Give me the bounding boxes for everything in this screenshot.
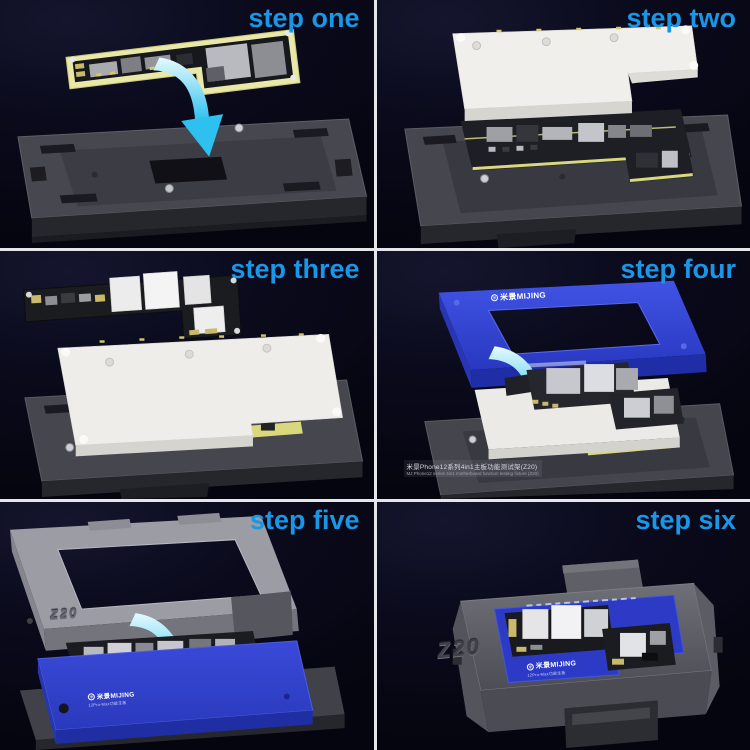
steps-grid: step one <box>0 0 750 750</box>
caption-line-2: MJ Phone12 series 4in1 motherboard funct… <box>407 471 539 476</box>
fixture-base <box>18 119 367 243</box>
mijing-logo: 米 米景MIJING 12Pro-Max功能主板 <box>526 658 577 678</box>
step-five-label: step five <box>250 505 360 536</box>
mijing-logo: 米 米景MIJING 12Pro-Max功能主板 <box>87 688 135 708</box>
step-one-label: step one <box>248 3 359 34</box>
step-three-label: step three <box>230 254 359 285</box>
step-three-illustration <box>0 251 374 499</box>
case-marking-z20: Z20 <box>435 634 481 664</box>
mijing-logo-icon: 米 <box>526 663 533 670</box>
step-six-illustration <box>377 502 750 750</box>
panel-step-six: step six <box>377 502 750 750</box>
step-two-illustration <box>377 0 750 248</box>
white-cover-plate <box>452 25 698 121</box>
panel-step-three: step three <box>0 251 374 499</box>
caption-line-1: 米景Phone12系列4in1主板功能测试架(Z20) <box>407 461 539 471</box>
product-caption: 米景Phone12系列4in1主板功能测试架(Z20) MJ Phone12 s… <box>404 460 542 477</box>
step-six-label: step six <box>635 505 736 536</box>
frame-marking-z20: Z20 <box>50 605 79 622</box>
step-four-label: step four <box>620 254 736 285</box>
step-one-illustration <box>0 0 374 248</box>
mijing-logo-icon: 米 <box>88 693 95 700</box>
upper-board-pcb <box>23 267 241 349</box>
assembled-fixture <box>452 560 722 748</box>
step-five-illustration <box>0 502 374 750</box>
fixture-with-cover <box>25 333 363 499</box>
step-two-label: step two <box>626 3 736 34</box>
panel-step-two: step two <box>377 0 750 248</box>
panel-step-one: step one <box>0 0 374 248</box>
mijing-logo-icon: 米 <box>490 294 497 301</box>
panel-step-four: step four <box>377 251 750 499</box>
panel-step-five: step five <box>0 502 374 750</box>
blue-fixture <box>20 631 345 750</box>
